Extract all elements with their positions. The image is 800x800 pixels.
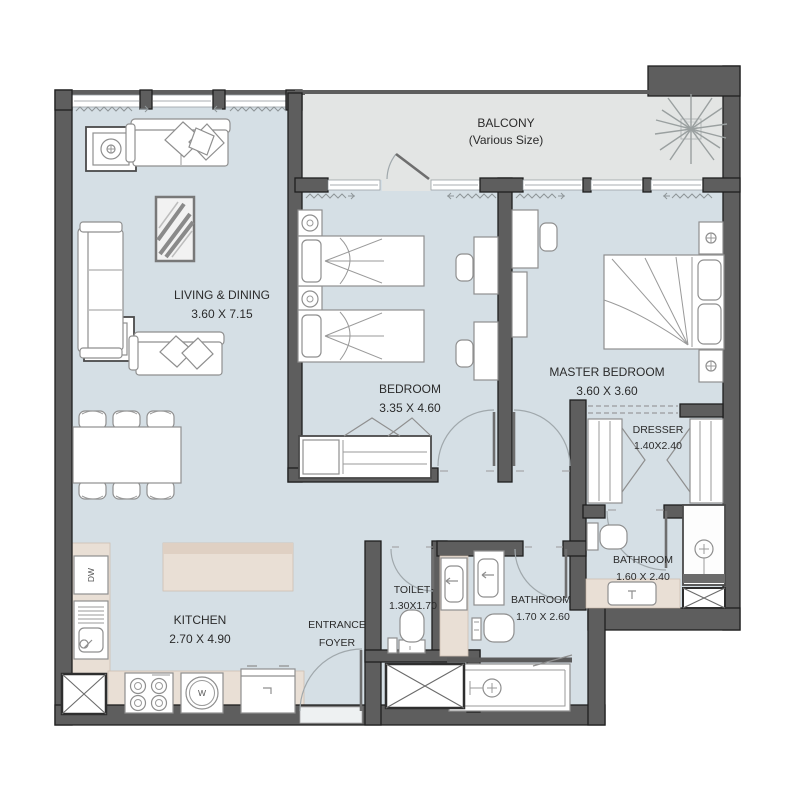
living-dining-label: LIVING & DINING xyxy=(174,288,270,302)
bathroom-toilet xyxy=(472,614,514,642)
bathtub xyxy=(447,655,572,711)
desk-chair xyxy=(456,340,473,367)
masterbath-shower xyxy=(683,505,725,585)
masterbath-toilet xyxy=(587,523,627,550)
balcony-band-mullion1 xyxy=(583,178,591,192)
bedroom-nightstand-1 xyxy=(298,210,322,236)
master-bathroom-size: 1.60 X 2.40 xyxy=(616,571,670,583)
masterbath-shaft xyxy=(683,588,725,608)
toilet-size: 1.30X1.70 xyxy=(389,600,437,612)
master-bathroom-label: BATHROOM xyxy=(613,554,673,566)
dining-table xyxy=(73,427,181,483)
entrance-door-opening xyxy=(300,707,362,723)
living-dining-size: 3.60 X 7.15 xyxy=(191,307,253,321)
pillow xyxy=(302,315,321,357)
entry-shaft xyxy=(386,664,464,708)
pillow xyxy=(698,304,721,344)
bathroom-label: BATHROOM xyxy=(511,594,571,606)
washing-machine: W xyxy=(181,673,223,713)
floor-plan: DW W xyxy=(0,0,800,800)
master-bedroom-label: MASTER BEDROOM xyxy=(549,365,664,379)
toilet-sink xyxy=(388,638,397,653)
kitchen-sink xyxy=(74,601,108,659)
dining-set xyxy=(73,411,181,499)
dresser-label: DRESSER xyxy=(633,424,684,436)
wall-foyer-toilet-divider xyxy=(365,541,381,725)
toilet-label: TOILET xyxy=(394,584,431,596)
entrance-foyer-label-1: ENTRANCE xyxy=(308,619,366,631)
wall-right-bottom xyxy=(588,608,605,725)
dishwasher-label: DW xyxy=(86,568,96,582)
wall-living-top-edge xyxy=(55,90,305,95)
living-window-post-left xyxy=(55,90,72,110)
wall-masterbath-bottom xyxy=(588,608,740,630)
master-bedroom-size: 3.60 X 3.60 xyxy=(576,384,638,398)
balcony-band-post2 xyxy=(480,178,523,192)
balcony-band-post3 xyxy=(703,178,740,192)
desk-chair xyxy=(540,223,557,251)
balcony-top-rail xyxy=(295,90,652,94)
refrigerator xyxy=(241,666,295,713)
coffee-table xyxy=(156,197,194,261)
master-nightstand-1 xyxy=(699,222,723,254)
outside-cutout xyxy=(600,630,740,710)
twin-bed-1 xyxy=(298,236,424,286)
stove xyxy=(125,673,173,713)
pillow xyxy=(698,260,721,300)
twin-bed-2 xyxy=(298,310,424,362)
dresser-size: 1.40X2.40 xyxy=(634,440,682,452)
balcony-label: BALCONY xyxy=(477,116,534,130)
washer-label: W xyxy=(198,688,206,698)
kitchen-label: KITCHEN xyxy=(174,613,227,627)
kitchen-island-top-edge xyxy=(163,543,293,554)
masterbath-vanity xyxy=(586,579,680,608)
pillow xyxy=(302,240,321,282)
kitchen-shaft xyxy=(62,674,106,714)
kitchen-size: 2.70 X 4.90 xyxy=(169,632,231,646)
master-nightstand-2 xyxy=(699,350,723,382)
balcony-door-opening xyxy=(382,179,431,191)
desk-chair xyxy=(456,254,473,281)
wall-bedroom-master-divider xyxy=(498,178,512,482)
sofa-bottom xyxy=(129,332,224,375)
wall-master-dresser-right xyxy=(680,404,723,417)
wall-left xyxy=(55,90,72,725)
living-window-mullion1 xyxy=(140,90,152,109)
balcony-band-post1 xyxy=(295,178,328,192)
wall-dresser-bath-left xyxy=(583,505,605,518)
living-window-mullion2 xyxy=(213,90,225,109)
balcony-band-mullion2 xyxy=(643,178,651,192)
entrance-foyer-label-2: FOYER xyxy=(319,637,356,649)
wall-top-right-step xyxy=(648,66,740,96)
balcony-size: (Various Size) xyxy=(469,133,543,147)
bathroom-vanity-left xyxy=(440,556,468,656)
master-bed xyxy=(604,255,724,349)
floor-plan-page: DW W xyxy=(0,0,800,800)
bedroom-nightstand-2 xyxy=(298,286,322,312)
bathroom-sink xyxy=(474,551,504,605)
sofa-top xyxy=(126,119,230,166)
sofa-left xyxy=(78,222,123,358)
master-shelf xyxy=(512,272,527,337)
bathroom-size: 1.70 X 2.60 xyxy=(516,611,570,623)
bedroom-size: 3.35 X 4.60 xyxy=(379,401,441,415)
bedroom-label: BEDROOM xyxy=(379,382,441,396)
